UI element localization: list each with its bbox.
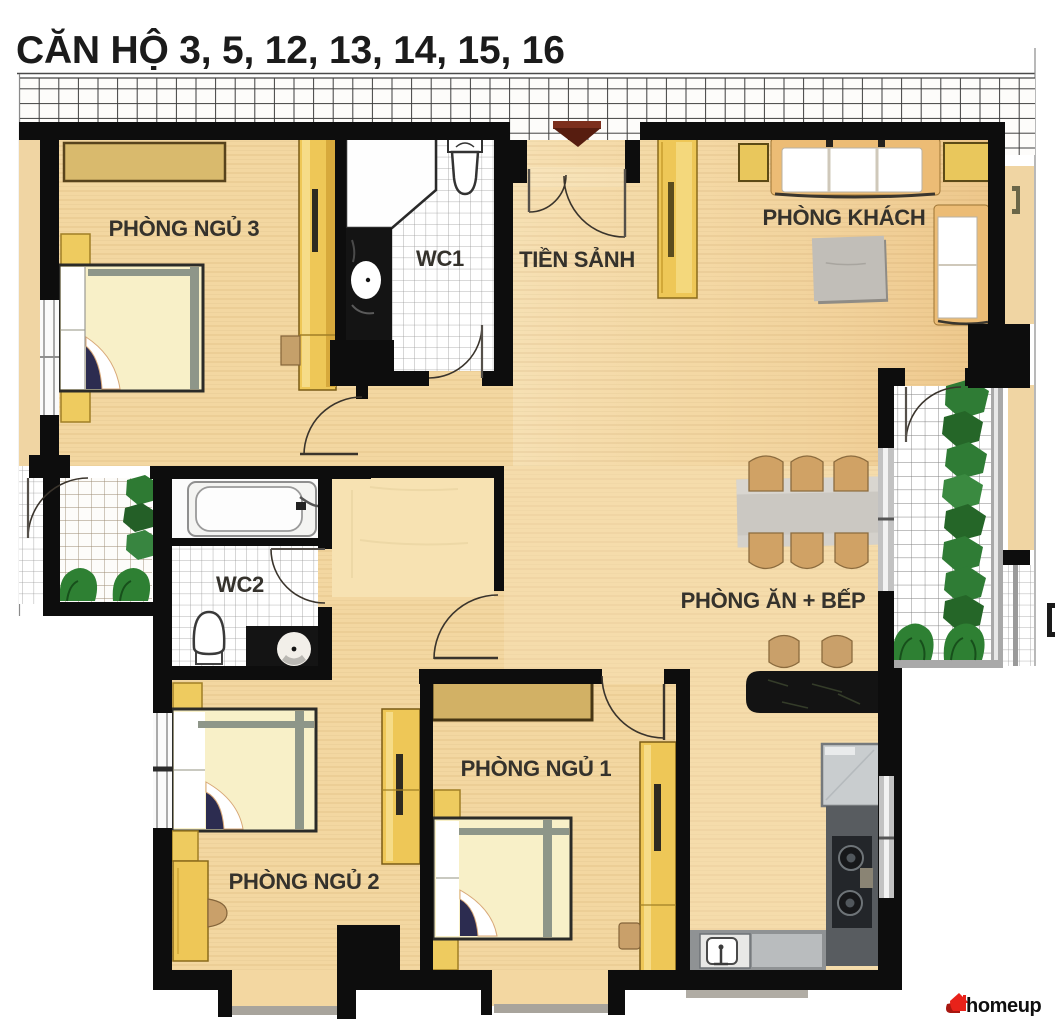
svg-text:PHÒNG KHÁCH: PHÒNG KHÁCH <box>763 205 926 230</box>
svg-text:PHÒNG NGỦ 3: PHÒNG NGỦ 3 <box>109 216 260 241</box>
svg-text:CĂN HỘ 3, 5, 12, 13, 14, 15, 1: CĂN HỘ 3, 5, 12, 13, 14, 15, 16 <box>16 27 565 72</box>
svg-text:PHÒNG NGỦ 2: PHÒNG NGỦ 2 <box>229 869 380 894</box>
svg-text:WC1: WC1 <box>416 246 464 271</box>
svg-text:PHÒNG NGỦ 1: PHÒNG NGỦ 1 <box>461 756 612 781</box>
svg-text:homeup: homeup <box>966 995 1042 1017</box>
svg-text:PHÒNG ĂN + BẾP: PHÒNG ĂN + BẾP <box>681 588 866 613</box>
svg-text:WC2: WC2 <box>216 572 264 597</box>
svg-text:TIỀN SẢNH: TIỀN SẢNH <box>519 247 635 272</box>
